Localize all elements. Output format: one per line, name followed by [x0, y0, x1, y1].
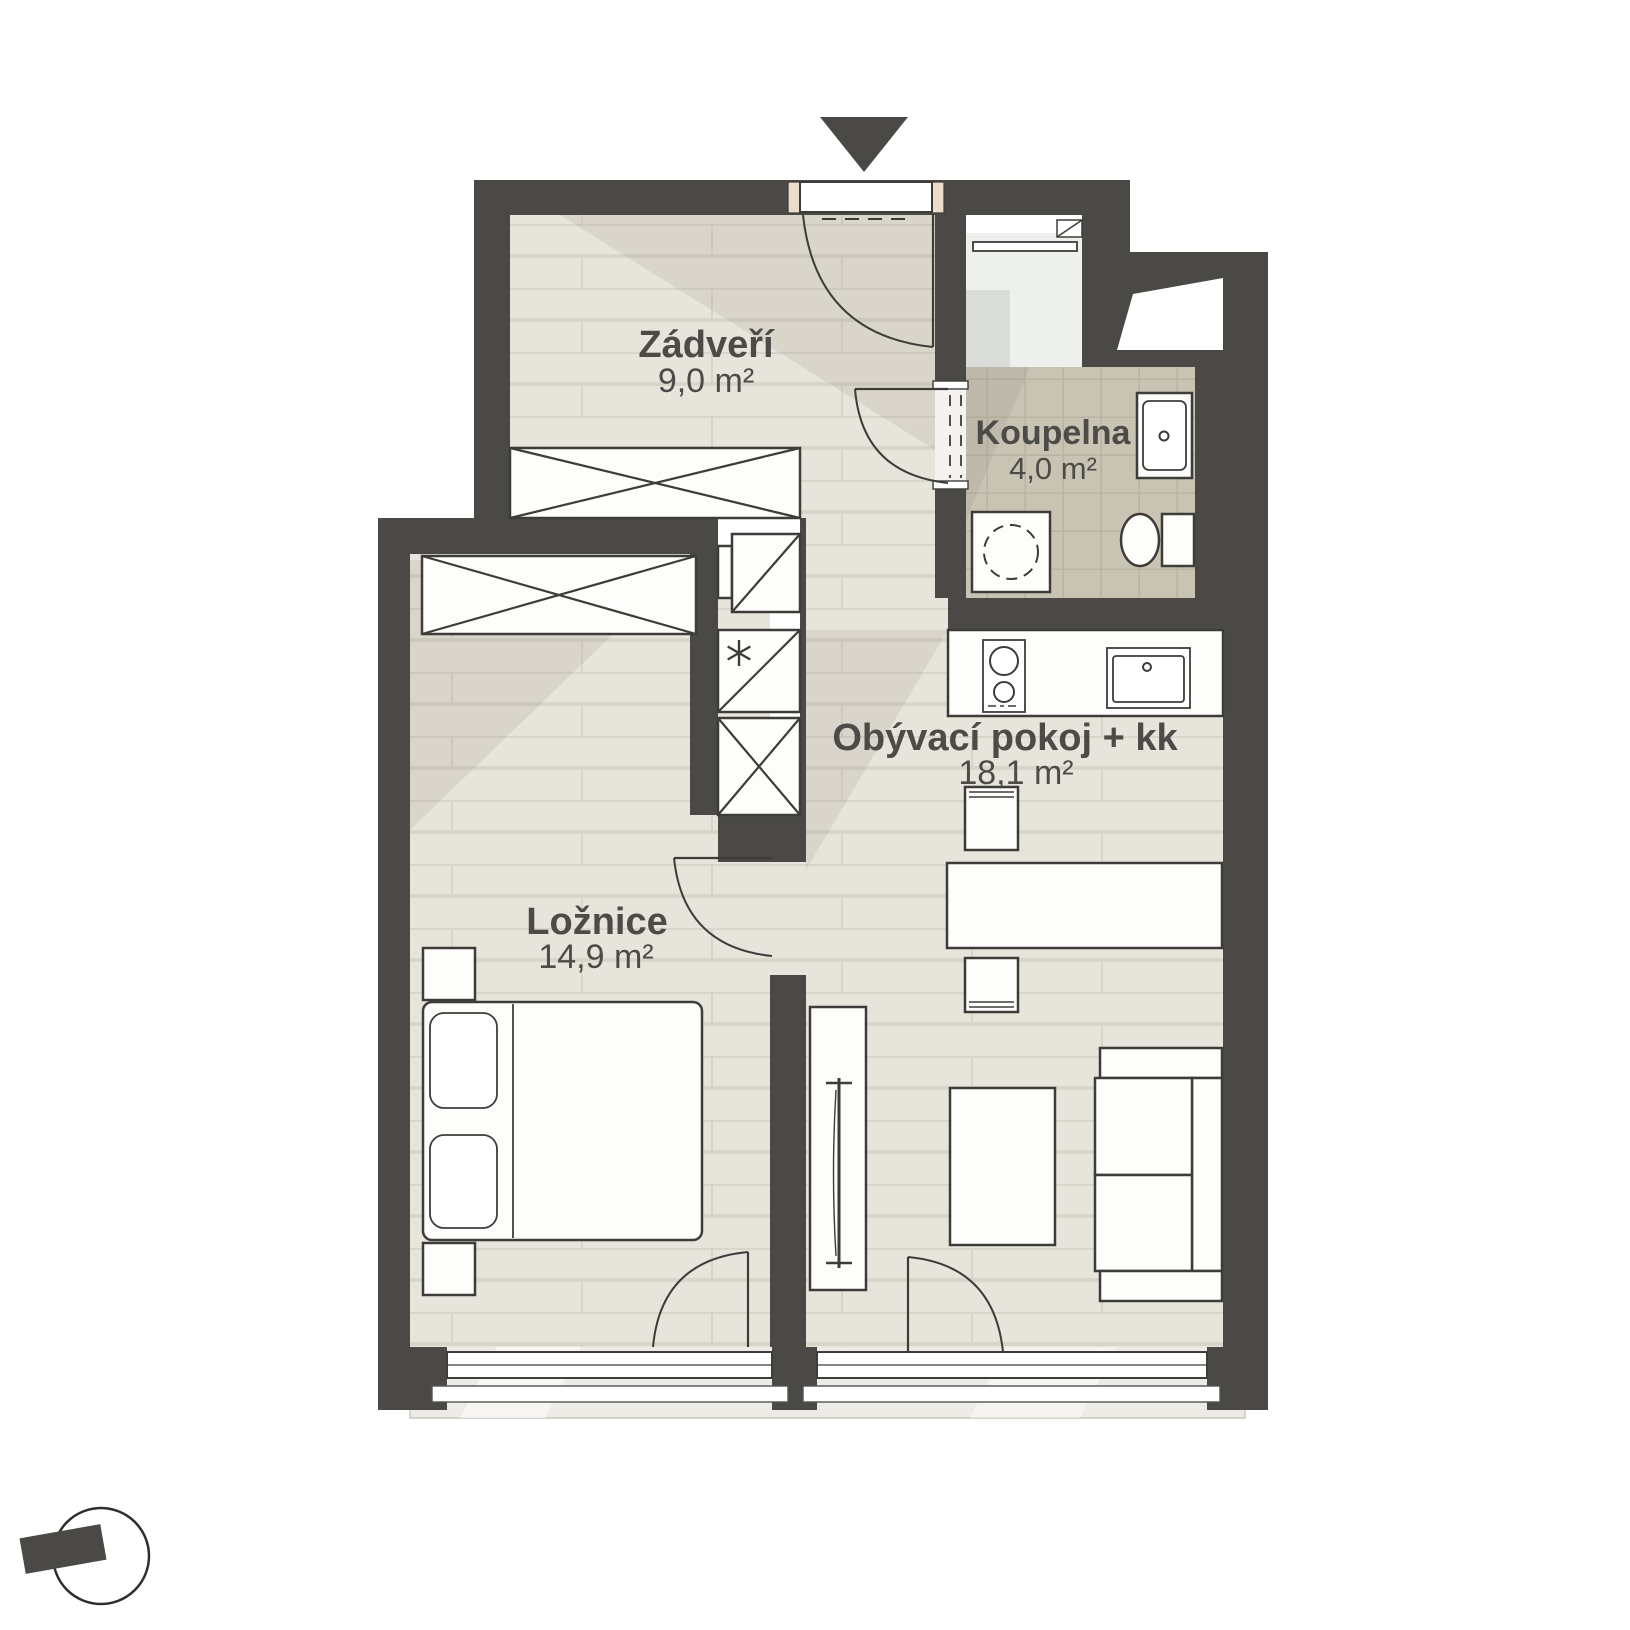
chair-2 [965, 958, 1018, 1012]
kitchen-sink [1107, 648, 1190, 708]
sofa-armrest-bottom [1100, 1271, 1222, 1301]
corridor-floor [806, 518, 948, 630]
hob [983, 640, 1025, 712]
sofa-backrest [1192, 1078, 1222, 1271]
sofa-cushion-2 [1095, 1175, 1192, 1271]
room-label-loznice: Ložnice [526, 901, 667, 943]
floor-plan: Zádveří 9,0 m² Koupelna 4,0 m² Obývací p… [0, 0, 1630, 1630]
window-sill-bedroom [432, 1386, 788, 1402]
kitchen [948, 630, 1223, 716]
sofa [1095, 1048, 1222, 1301]
tall-cabinet-lower [718, 718, 800, 815]
pillow-1 [430, 1013, 497, 1108]
tv-unit [810, 1007, 866, 1290]
room-area-loznice: 14,9 m² [538, 938, 653, 976]
sofa-armrest-top [1100, 1048, 1222, 1078]
nightstand-2 [423, 1243, 475, 1295]
cabinet-panel [718, 546, 732, 598]
dining-table [947, 863, 1222, 948]
washing-machine [972, 512, 1050, 592]
nightstand-1 [423, 948, 475, 1000]
wardrobe-hall [510, 448, 800, 518]
room-label-koupelna: Koupelna [976, 414, 1132, 452]
pillow-2 [430, 1135, 497, 1228]
fridge [718, 630, 800, 712]
bedroom-doorway-floor [766, 858, 810, 978]
sofa-cushion-1 [1095, 1078, 1192, 1175]
room-area-zadveri: 9,0 m² [658, 362, 754, 400]
shower-shadow [966, 290, 1010, 367]
tall-cabinet-upper [732, 534, 800, 612]
room-area-koupelna: 4,0 m² [1009, 451, 1097, 486]
coffee-table [950, 1088, 1055, 1245]
double-bed [423, 1002, 702, 1240]
room-area-obyvaci-pokoj: 18,1 m² [958, 754, 1073, 792]
window-sill-living [803, 1386, 1220, 1402]
bathroom-sink [1137, 393, 1192, 478]
chair-1 [965, 787, 1018, 850]
wardrobe-bedroom [422, 556, 696, 634]
room-label-zadveri: Zádveří [638, 324, 775, 366]
shower-glass [973, 242, 1077, 251]
floor-plan-page: Zádveří 9,0 m² Koupelna 4,0 m² Obývací p… [0, 0, 1630, 1630]
room-label-obyvaci-pokoj: Obývací pokoj + kk [832, 717, 1178, 759]
